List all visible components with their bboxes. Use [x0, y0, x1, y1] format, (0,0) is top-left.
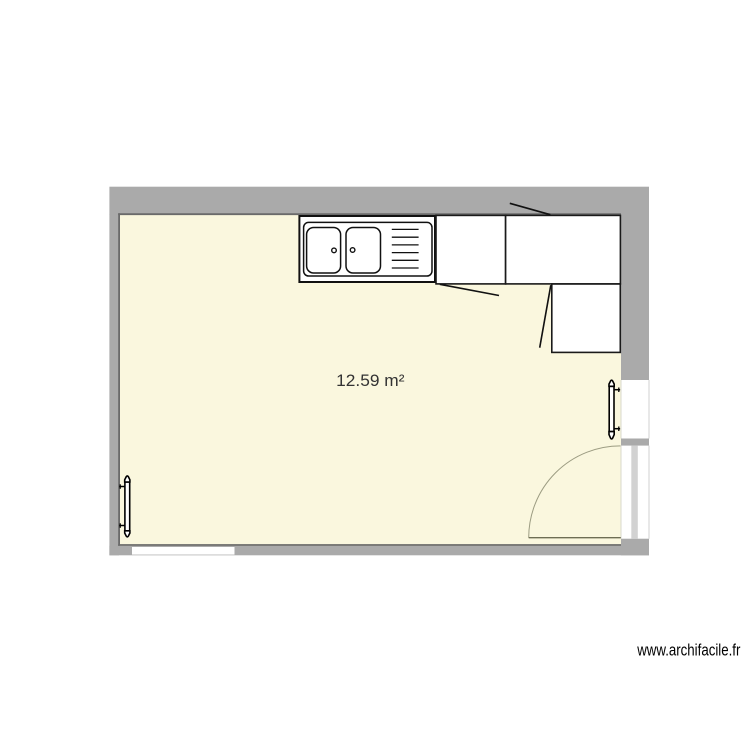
svg-text:www.archifacile.fr: www.archifacile.fr: [636, 640, 740, 659]
svg-text:12.59 m²: 12.59 m²: [336, 371, 405, 390]
